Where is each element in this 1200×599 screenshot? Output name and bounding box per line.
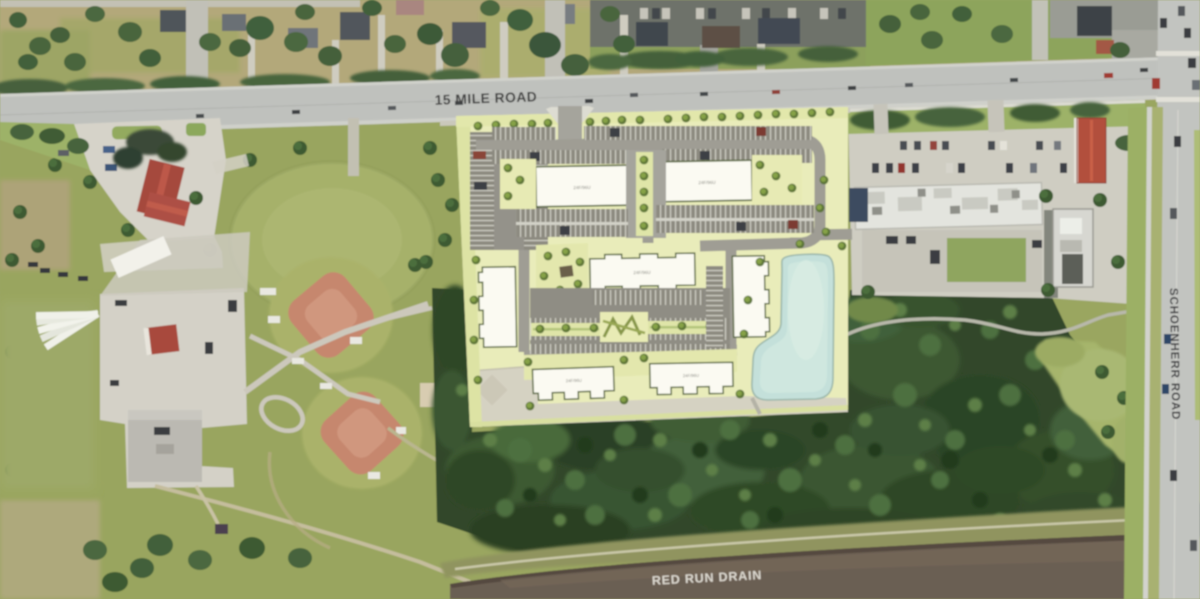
svg-text:24F/96U: 24F/96U (566, 378, 582, 384)
svg-text:24F/96U: 24F/96U (683, 373, 699, 378)
svg-text:24F/96U: 24F/96U (633, 270, 650, 275)
svg-text:24F/96U: 24F/96U (698, 180, 715, 185)
svg-text:SCHOENHERR ROAD: SCHOENHERR ROAD (1167, 288, 1181, 421)
svg-text:24F/96U: 24F/96U (573, 185, 590, 190)
